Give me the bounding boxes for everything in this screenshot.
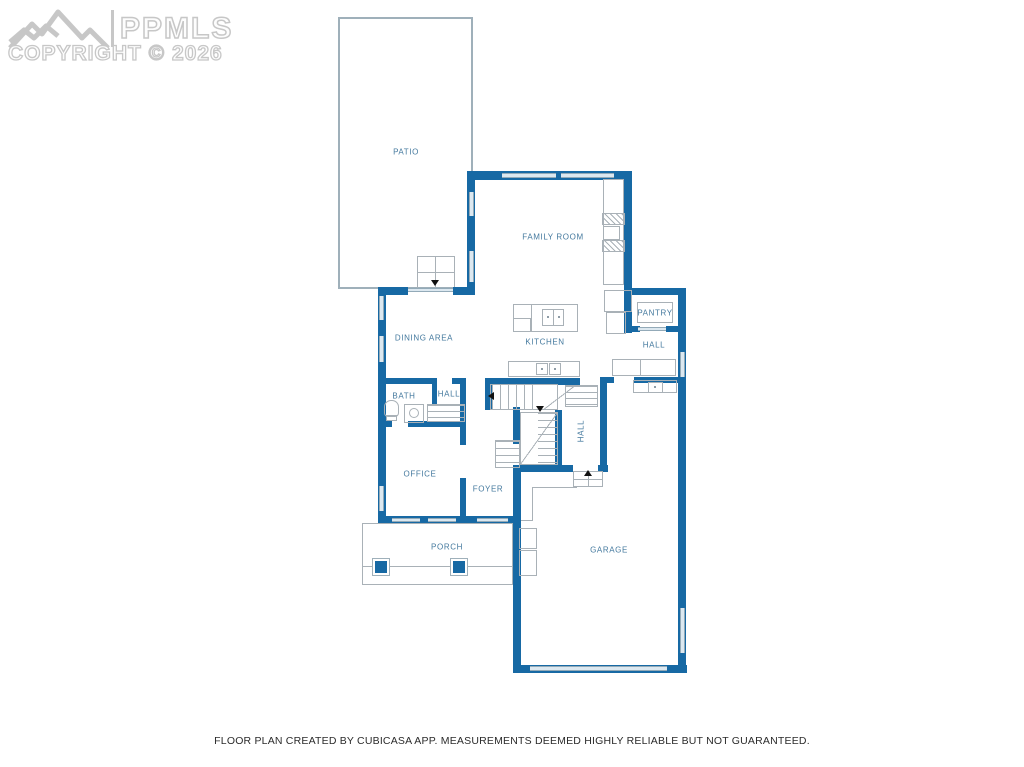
room-label-garage: GARAGE — [590, 546, 628, 555]
fireplace-hatch — [602, 240, 625, 252]
stairs-lower-flight — [495, 440, 520, 468]
room-label-dining-area: DINING AREA — [395, 334, 453, 343]
window — [392, 518, 420, 522]
wall — [378, 421, 392, 427]
wall — [624, 288, 684, 295]
room-label-hall-upper: HALL — [643, 341, 665, 350]
porch-post — [373, 559, 389, 575]
floor-plan-canvas: PPMLS COPYRIGHT © 2026 — [0, 0, 1024, 767]
counter — [606, 312, 626, 334]
sink-basin — [409, 408, 419, 418]
fireplace-hatch — [602, 213, 625, 225]
wall — [453, 287, 475, 295]
room-label-foyer: FOYER — [473, 485, 504, 494]
stair-direction-arrow — [488, 392, 494, 400]
front-door — [477, 518, 508, 522]
wall — [378, 378, 437, 384]
hall-shelf — [427, 404, 465, 422]
porch-outline — [362, 523, 513, 585]
utility-sink-dot — [654, 386, 656, 388]
room-label-patio: PATIO — [393, 148, 419, 157]
hall-counter — [612, 359, 676, 376]
watermark: PPMLS COPYRIGHT © 2026 — [8, 4, 223, 74]
wall — [513, 407, 520, 444]
step-direction-arrow — [584, 470, 592, 476]
island-cabinet — [513, 318, 531, 332]
stair-break-line — [520, 412, 558, 465]
hall-counter-divider — [640, 359, 641, 376]
garage-landing-line — [521, 520, 533, 521]
pantry-door — [638, 327, 666, 331]
entry-steps-line — [573, 479, 603, 480]
window — [379, 486, 384, 511]
wall — [432, 380, 437, 404]
garage-storage — [519, 550, 537, 576]
closet-shelf — [565, 385, 598, 407]
wall — [600, 383, 607, 472]
window — [379, 336, 384, 362]
garage-door — [530, 666, 667, 671]
burner-dot — [541, 368, 543, 370]
garage-storage — [519, 528, 537, 549]
window — [680, 608, 685, 653]
sink-divider — [553, 309, 554, 326]
refrigerator-icon — [604, 290, 632, 312]
patio-slider-door — [408, 288, 453, 292]
stair-treads — [492, 385, 540, 409]
room-label-hall-bath: HALL — [438, 390, 460, 399]
room-label-family-room: FAMILY ROOM — [522, 233, 583, 242]
disclaimer-text: FLOOR PLAN CREATED BY CUBICASA APP. MEAS… — [0, 735, 1024, 747]
room-label-pantry: PANTRY — [637, 309, 672, 318]
stair-direction-arrow — [536, 406, 544, 412]
window — [680, 352, 685, 377]
brand-text: PPMLS — [120, 12, 233, 46]
faucet-dot — [547, 316, 549, 318]
wall — [513, 465, 573, 472]
window — [469, 192, 474, 216]
patio-steps-line — [417, 272, 455, 273]
room-label-office: OFFICE — [404, 470, 437, 479]
copyright-text: COPYRIGHT © 2026 — [8, 42, 223, 66]
burner-dot — [554, 368, 556, 370]
wall — [666, 326, 684, 332]
window — [428, 518, 456, 522]
garage-landing-line — [532, 487, 533, 521]
room-label-kitchen: KITCHEN — [525, 338, 564, 347]
faucet-dot — [558, 316, 560, 318]
garage-landing-line — [532, 487, 577, 488]
window-mullion — [556, 171, 561, 180]
step-direction-arrow — [431, 280, 439, 286]
toilet-tank — [386, 415, 397, 421]
room-label-hall-stairs: HALL — [577, 420, 586, 442]
room-label-porch: PORCH — [431, 543, 463, 552]
window — [469, 251, 474, 282]
island-divider — [531, 304, 532, 332]
porch-post — [451, 559, 467, 575]
window — [379, 296, 384, 320]
fireplace-box — [603, 226, 620, 240]
room-label-bath: BATH — [392, 392, 415, 401]
